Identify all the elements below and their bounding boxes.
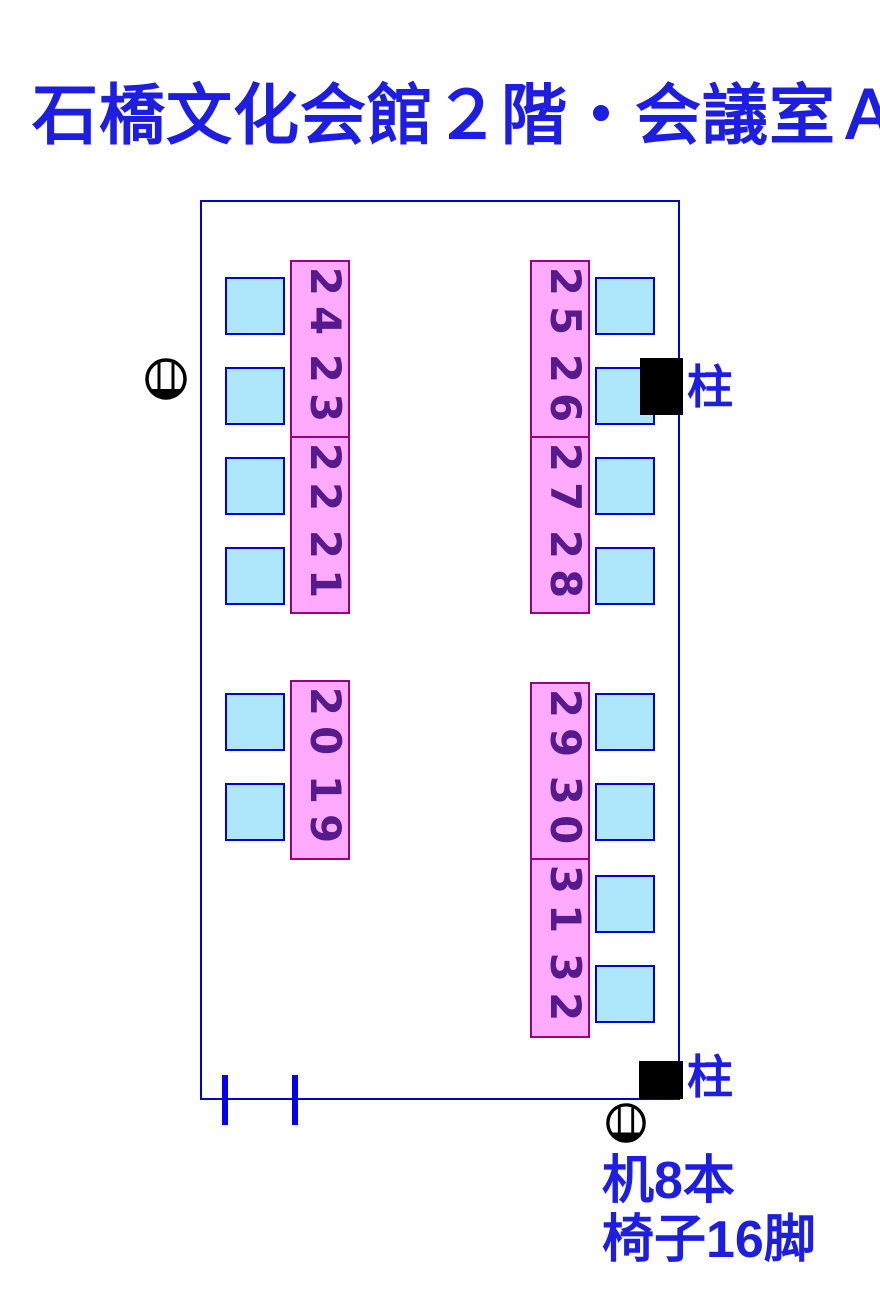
table-22-21: 22 21 [290, 436, 350, 614]
table-number: 27 [544, 442, 586, 520]
floor-plan-page: 石橋文化会館２階・会議室Ａ 24 23 22 21 25 26 27 28 20… [0, 0, 880, 1300]
chair [225, 783, 285, 841]
table-27-28: 27 28 [530, 436, 590, 614]
table-number: 23 [304, 353, 346, 431]
table-number: 29 [544, 688, 586, 766]
door-tick [292, 1075, 298, 1125]
page-title: 石橋文化会館２階・会議室Ａ [32, 62, 880, 158]
door-knob-icon [144, 357, 188, 401]
table-25-26: 25 26 [530, 260, 590, 438]
pillar-top [640, 358, 683, 415]
pillar-label: 柱 [687, 364, 733, 410]
table-number: 21 [304, 529, 346, 607]
desks-note: 机8本 [602, 1152, 816, 1211]
chair [595, 783, 655, 841]
table-31-32: 31 32 [530, 858, 590, 1038]
table-number: 32 [544, 953, 586, 1031]
chairs-note: 椅子16脚 [602, 1211, 816, 1270]
chair [225, 277, 285, 335]
chair [225, 547, 285, 605]
chair [225, 367, 285, 425]
pillar-label: 柱 [687, 1054, 733, 1100]
table-number: 31 [544, 865, 586, 943]
table-number: 20 [304, 687, 346, 765]
table-number: 24 [304, 266, 346, 344]
table-number: 30 [544, 775, 586, 853]
table-number: 26 [544, 353, 586, 431]
chair [225, 693, 285, 751]
door-knob-icon [605, 1102, 647, 1144]
equipment-notes: 机8本 椅子16脚 [602, 1152, 816, 1270]
chair [595, 875, 655, 933]
chair [595, 547, 655, 605]
table-24-23: 24 23 [290, 260, 350, 438]
table-29-30: 29 30 [530, 682, 590, 860]
chair [595, 965, 655, 1023]
table-20-19: 20 19 [290, 680, 350, 860]
table-number: 28 [544, 529, 586, 607]
chair [595, 457, 655, 515]
door-tick [222, 1075, 228, 1125]
chair [595, 693, 655, 751]
table-number: 25 [544, 266, 586, 344]
pillar-bottom [639, 1061, 683, 1099]
chair [595, 277, 655, 335]
chair [225, 457, 285, 515]
table-number: 19 [304, 775, 346, 853]
table-number: 22 [304, 442, 346, 520]
